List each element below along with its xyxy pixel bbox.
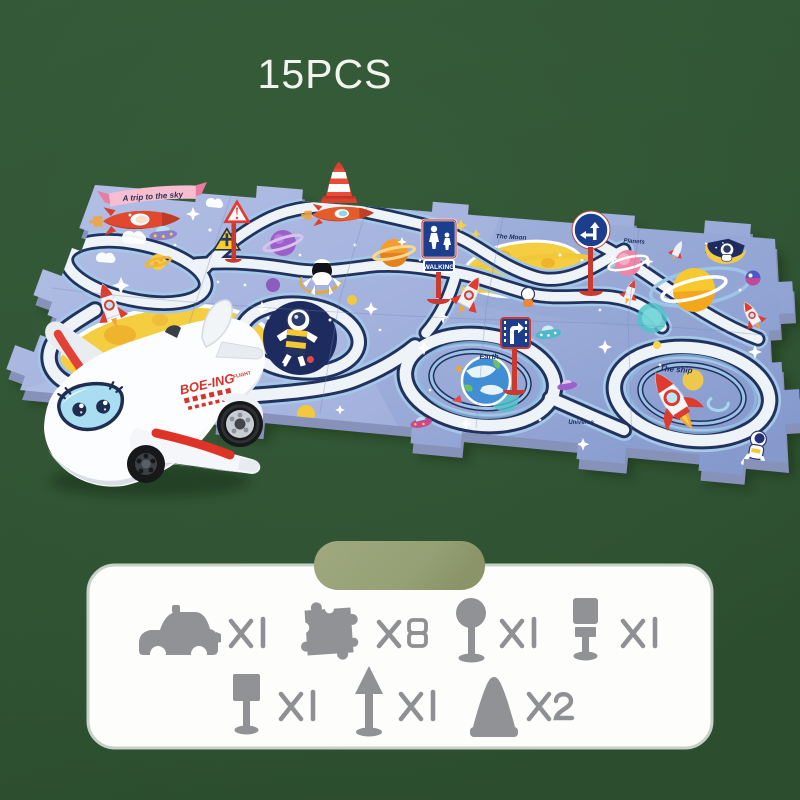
svg-text:15PCS: 15PCS bbox=[258, 51, 393, 97]
svg-text:WALKING: WALKING bbox=[424, 264, 455, 271]
svg-text:Universe: Universe bbox=[568, 420, 594, 426]
